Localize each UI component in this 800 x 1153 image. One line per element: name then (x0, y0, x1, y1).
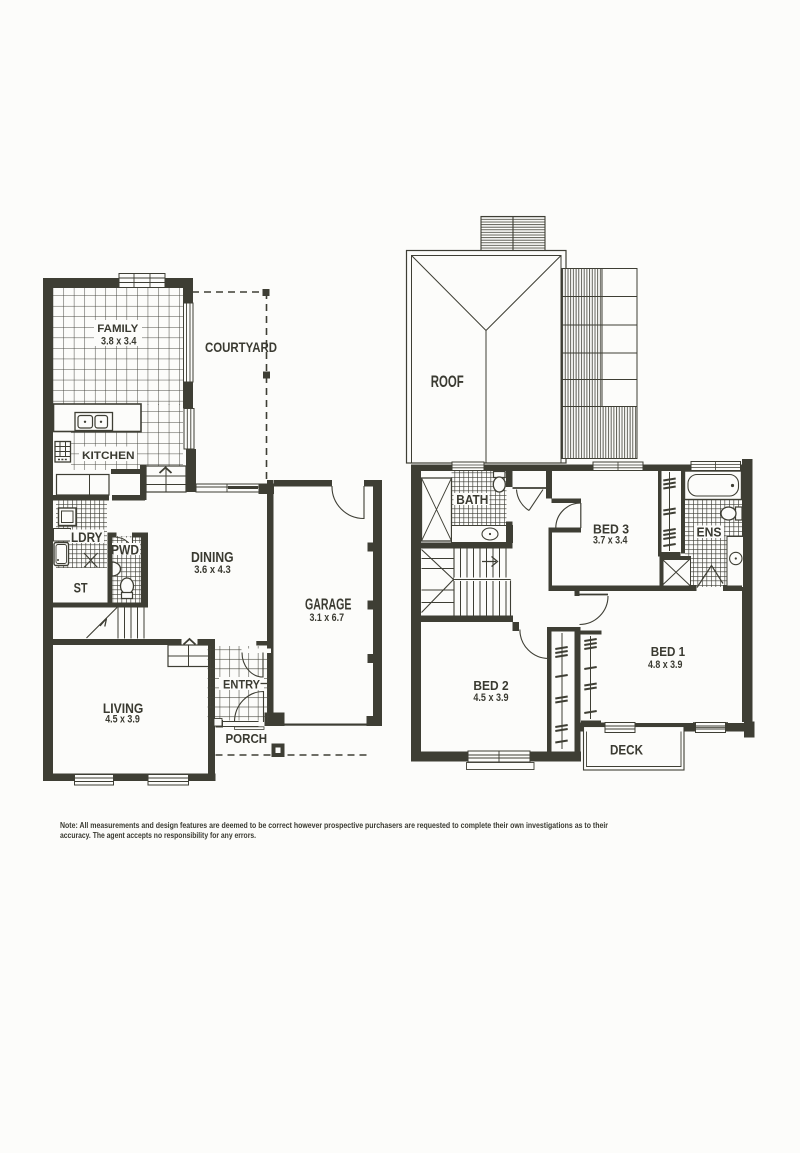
svg-text:DECK: DECK (610, 742, 643, 758)
svg-text:ST: ST (74, 580, 88, 596)
svg-text:3.6 x 4.3: 3.6 x 4.3 (194, 564, 231, 576)
svg-text:4.8 x 3.9: 4.8 x 3.9 (648, 659, 682, 671)
svg-text:LDRY: LDRY (71, 530, 103, 545)
svg-text:BATH: BATH (456, 492, 488, 507)
svg-text:FAMILY: FAMILY (97, 323, 139, 335)
svg-text:COURTYARD: COURTYARD (205, 340, 277, 355)
svg-text:Note: All measurements and des: Note: All measurements and design featur… (60, 821, 609, 830)
svg-text:3.8 x 3.4: 3.8 x 3.4 (101, 335, 137, 347)
svg-text:4.5 x 3.9: 4.5 x 3.9 (105, 714, 140, 726)
svg-text:ENTRY: ENTRY (223, 677, 260, 691)
svg-text:accuracy. The agent accepts no: accuracy. The agent accepts no responsib… (60, 831, 256, 840)
svg-text:PWD: PWD (111, 541, 139, 557)
svg-text:4.5 x 3.9: 4.5 x 3.9 (473, 692, 508, 704)
svg-text:BED 2: BED 2 (473, 678, 508, 693)
svg-text:ROOF: ROOF (431, 373, 464, 391)
svg-text:3.7 x 3.4: 3.7 x 3.4 (593, 534, 628, 546)
svg-text:ENS: ENS (697, 525, 722, 540)
svg-text:BED 1: BED 1 (651, 644, 685, 659)
svg-text:3.1 x 6.7: 3.1 x 6.7 (310, 612, 345, 624)
svg-text:PORCH: PORCH (226, 731, 268, 746)
svg-text:GARAGE: GARAGE (305, 597, 352, 614)
svg-text:KITCHEN: KITCHEN (82, 450, 135, 462)
